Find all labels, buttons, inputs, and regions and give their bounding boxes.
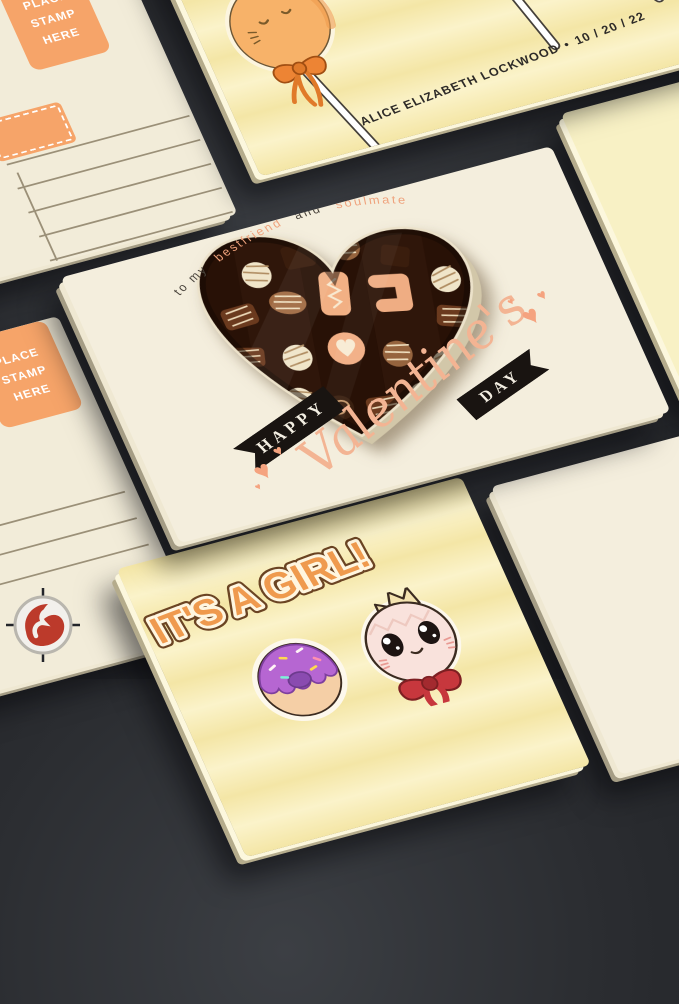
brand-logo: S [6, 588, 80, 662]
dedication-part: to my [163, 261, 218, 300]
address-line [0, 491, 125, 542]
product-mockup: { "background": {"color": "#2b2d31"}, "b… [0, 0, 679, 679]
stamp-box: PLACE STAMP HERE [0, 320, 84, 430]
address-line [39, 187, 222, 237]
stamp-line: HERE [40, 25, 81, 47]
pop-stick-icon [627, 0, 659, 3]
svg-text:IT'S A GIRL!: IT'S A GIRL! [143, 534, 378, 652]
dedication-part: soulmate [332, 180, 412, 224]
cake-pop-icon [209, 0, 368, 120]
bullet-separator: • [561, 38, 573, 51]
heart-icon: ♥ [516, 302, 547, 331]
postage-stamp-strip [0, 104, 74, 159]
cake-pop-character-icon [335, 578, 493, 719]
heart-icon: ♥ [533, 287, 551, 304]
dedication-part: bestfriend [203, 215, 293, 266]
dedication-part: and [291, 202, 325, 223]
heart-icon: ♥ [269, 443, 287, 460]
address-line [0, 517, 137, 568]
heart-icon: ♥ [248, 457, 279, 486]
stamp-box: PLACE STAMP HERE [0, 0, 112, 72]
donut-icon [237, 628, 363, 732]
address-line [28, 163, 211, 213]
stamp-line: HERE [11, 381, 52, 403]
